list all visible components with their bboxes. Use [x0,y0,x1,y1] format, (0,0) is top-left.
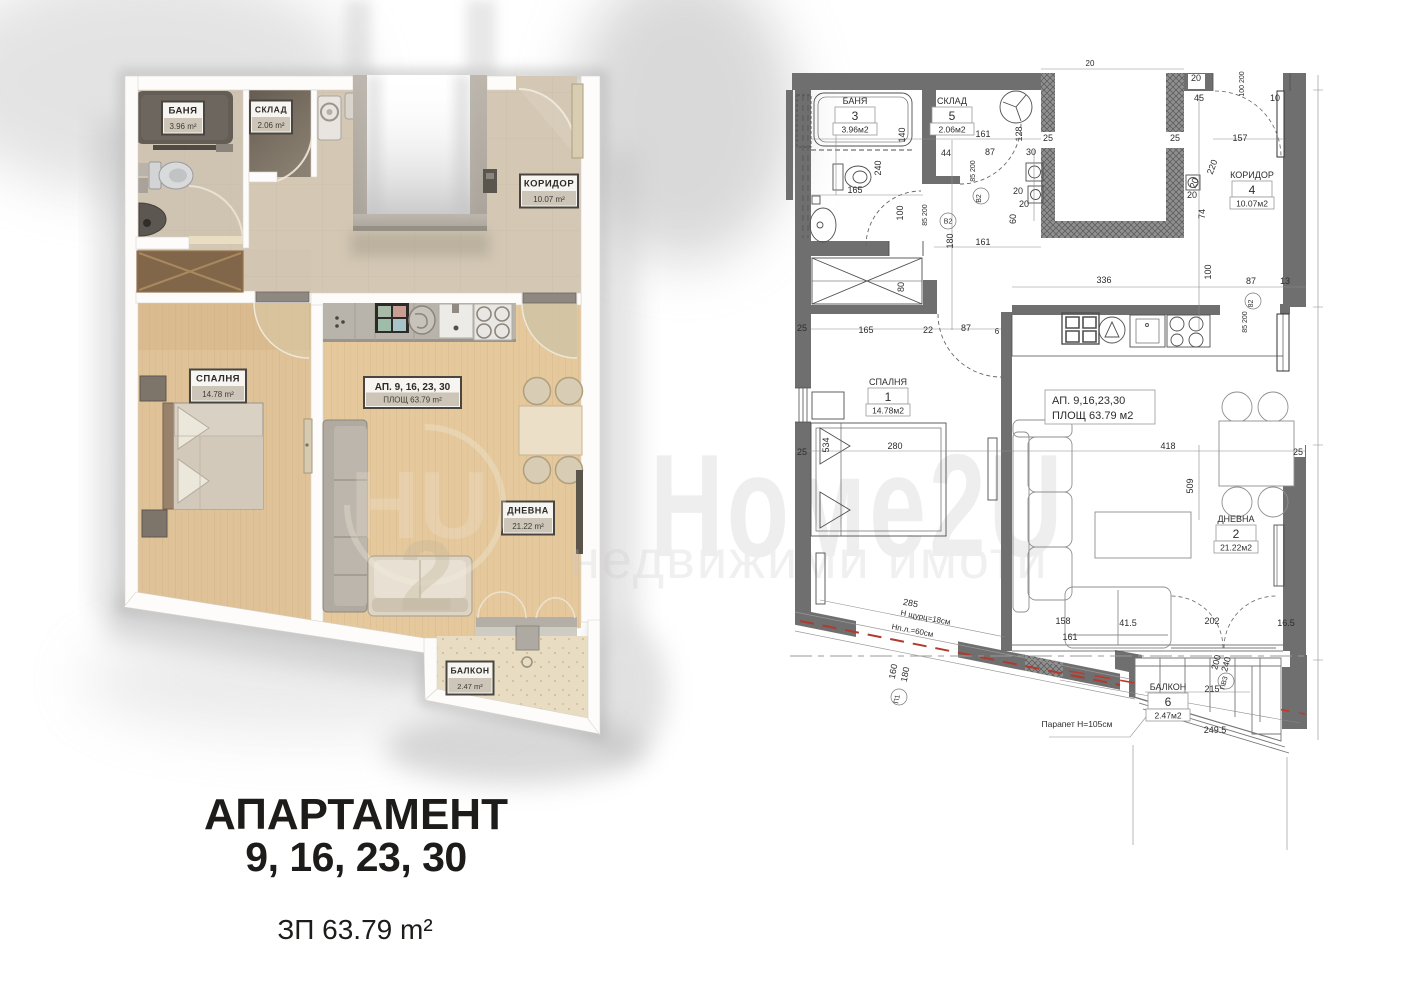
svg-text:В2: В2 [976,194,983,203]
svg-text:336: 336 [1096,275,1111,285]
svg-text:БАНЯ: БАНЯ [843,96,868,106]
svg-text:КОРИДОР: КОРИДОР [524,179,575,190]
svg-text:25: 25 [1293,447,1303,457]
svg-text:2.06м2: 2.06м2 [938,125,965,135]
svg-text:3.96 m²: 3.96 m² [169,122,196,131]
svg-text:14.78 m²: 14.78 m² [202,390,234,399]
svg-text:25: 25 [797,447,807,457]
svg-text:158: 158 [1055,616,1070,626]
svg-text:БАНЯ: БАНЯ [168,106,197,117]
svg-text:87: 87 [1246,276,1256,286]
svg-text:СПАЛНЯ: СПАЛНЯ [196,374,240,385]
svg-text:180: 180 [945,233,955,248]
svg-text:21.22 m²: 21.22 m² [512,522,544,531]
svg-text:СПАЛНЯ: СПАЛНЯ [869,377,907,387]
svg-text:22: 22 [923,325,933,335]
svg-text:100 200: 100 200 [1239,71,1246,96]
svg-text:25: 25 [1170,133,1180,143]
svg-text:20: 20 [1188,177,1201,190]
svg-text:Парапет Н=105см: Парапет Н=105см [1042,719,1113,729]
svg-text:128: 128 [1014,126,1024,141]
svg-text:10.07 m²: 10.07 m² [533,195,565,204]
svg-text:60: 60 [1008,214,1018,224]
svg-text:В2: В2 [944,219,953,226]
svg-text:202: 202 [1204,616,1219,626]
svg-text:АП. 9,16,23,30: АП. 9,16,23,30 [1052,395,1125,407]
svg-text:74: 74 [1197,209,1207,219]
svg-text:82: 82 [1248,300,1255,308]
svg-text:9, 16, 23, 30: 9, 16, 23, 30 [245,834,466,880]
svg-text:ЗП 63.79 m²: ЗП 63.79 m² [277,914,432,945]
svg-text:КОРИДОР: КОРИДОР [1230,170,1274,180]
svg-text:157: 157 [1232,133,1247,143]
svg-text:10: 10 [1270,93,1280,103]
svg-text:165: 165 [847,185,862,195]
svg-text:20: 20 [1191,73,1201,83]
svg-text:100: 100 [895,205,905,220]
svg-text:161: 161 [975,237,990,247]
svg-text:4: 4 [1249,183,1256,197]
svg-text:280: 280 [887,441,902,451]
svg-text:СКЛАД: СКЛАД [255,105,287,115]
svg-text:20: 20 [1187,190,1197,200]
svg-text:85 200: 85 200 [970,160,977,182]
svg-text:285: 285 [902,597,919,610]
svg-text:2.47м2: 2.47м2 [1154,711,1181,721]
svg-text:АПАРТАМЕНТ: АПАРТАМЕНТ [204,790,508,839]
svg-text:220: 220 [1205,158,1220,176]
svg-text:509: 509 [1185,478,1195,493]
svg-text:ДНЕВНА: ДНЕВНА [507,506,548,516]
svg-text:161: 161 [975,129,990,139]
svg-text:21.22м2: 21.22м2 [1220,543,1252,553]
svg-text:85 200: 85 200 [1242,311,1249,333]
svg-text:6: 6 [995,327,1000,336]
svg-text:20: 20 [1013,186,1023,196]
svg-text:25: 25 [1043,133,1053,143]
svg-text:160: 160 [887,663,900,680]
svg-text:5: 5 [949,109,956,123]
svg-text:ПЛОЩ 63.79 м2: ПЛОЩ 63.79 м2 [1052,410,1133,422]
svg-text:ДНЕВНА: ДНЕВНА [1217,514,1254,524]
svg-text:6: 6 [1165,695,1172,709]
svg-text:2: 2 [1233,527,1240,541]
svg-text:3.96м2: 3.96м2 [841,125,868,135]
svg-text:2.06 m²: 2.06 m² [257,121,284,130]
svg-text:249.5: 249.5 [1204,725,1227,735]
svg-text:80: 80 [896,282,906,292]
svg-text:1: 1 [885,390,892,404]
svg-text:16.5: 16.5 [1277,618,1295,628]
svg-text:20: 20 [1086,59,1095,68]
svg-text:44: 44 [941,148,951,158]
svg-text:215: 215 [1204,684,1219,694]
svg-text:85 200: 85 200 [922,204,929,226]
svg-text:161: 161 [1062,632,1077,642]
svg-text:20: 20 [1019,199,1029,209]
svg-text:418: 418 [1160,441,1175,451]
svg-text:100: 100 [1203,264,1213,279]
svg-text:41.5: 41.5 [1119,618,1137,628]
svg-text:25: 25 [797,323,807,333]
svg-text:АП. 9, 16, 23, 30: АП. 9, 16, 23, 30 [375,382,451,393]
svg-text:165: 165 [858,325,873,335]
svg-text:14.78м2: 14.78м2 [872,406,904,416]
svg-text:45: 45 [1194,93,1204,103]
svg-text:140: 140 [897,127,907,142]
svg-text:180: 180 [899,666,912,683]
svg-text:10.07м2: 10.07м2 [1236,199,1268,209]
svg-text:87: 87 [961,323,971,333]
svg-text:240: 240 [873,160,883,175]
svg-text:2.47 m²: 2.47 m² [457,682,483,691]
svg-text:3: 3 [852,109,859,123]
svg-text:87: 87 [985,147,995,157]
svg-text:30: 30 [1026,147,1036,157]
svg-text:ПЛОЩ 63.79 m²: ПЛОЩ 63.79 m² [383,396,442,405]
svg-text:2: 2 [399,520,455,632]
svg-text:13: 13 [1280,276,1290,286]
svg-text:СКЛАД: СКЛАД [937,96,967,106]
svg-text:БАЛКОН: БАЛКОН [451,666,490,676]
svg-text:Нп.л.=60см: Нп.л.=60см [891,622,934,639]
svg-text:534: 534 [821,437,831,452]
svg-text:БАЛКОН: БАЛКОН [1150,682,1186,692]
svg-text:П1: П1 [893,694,902,704]
